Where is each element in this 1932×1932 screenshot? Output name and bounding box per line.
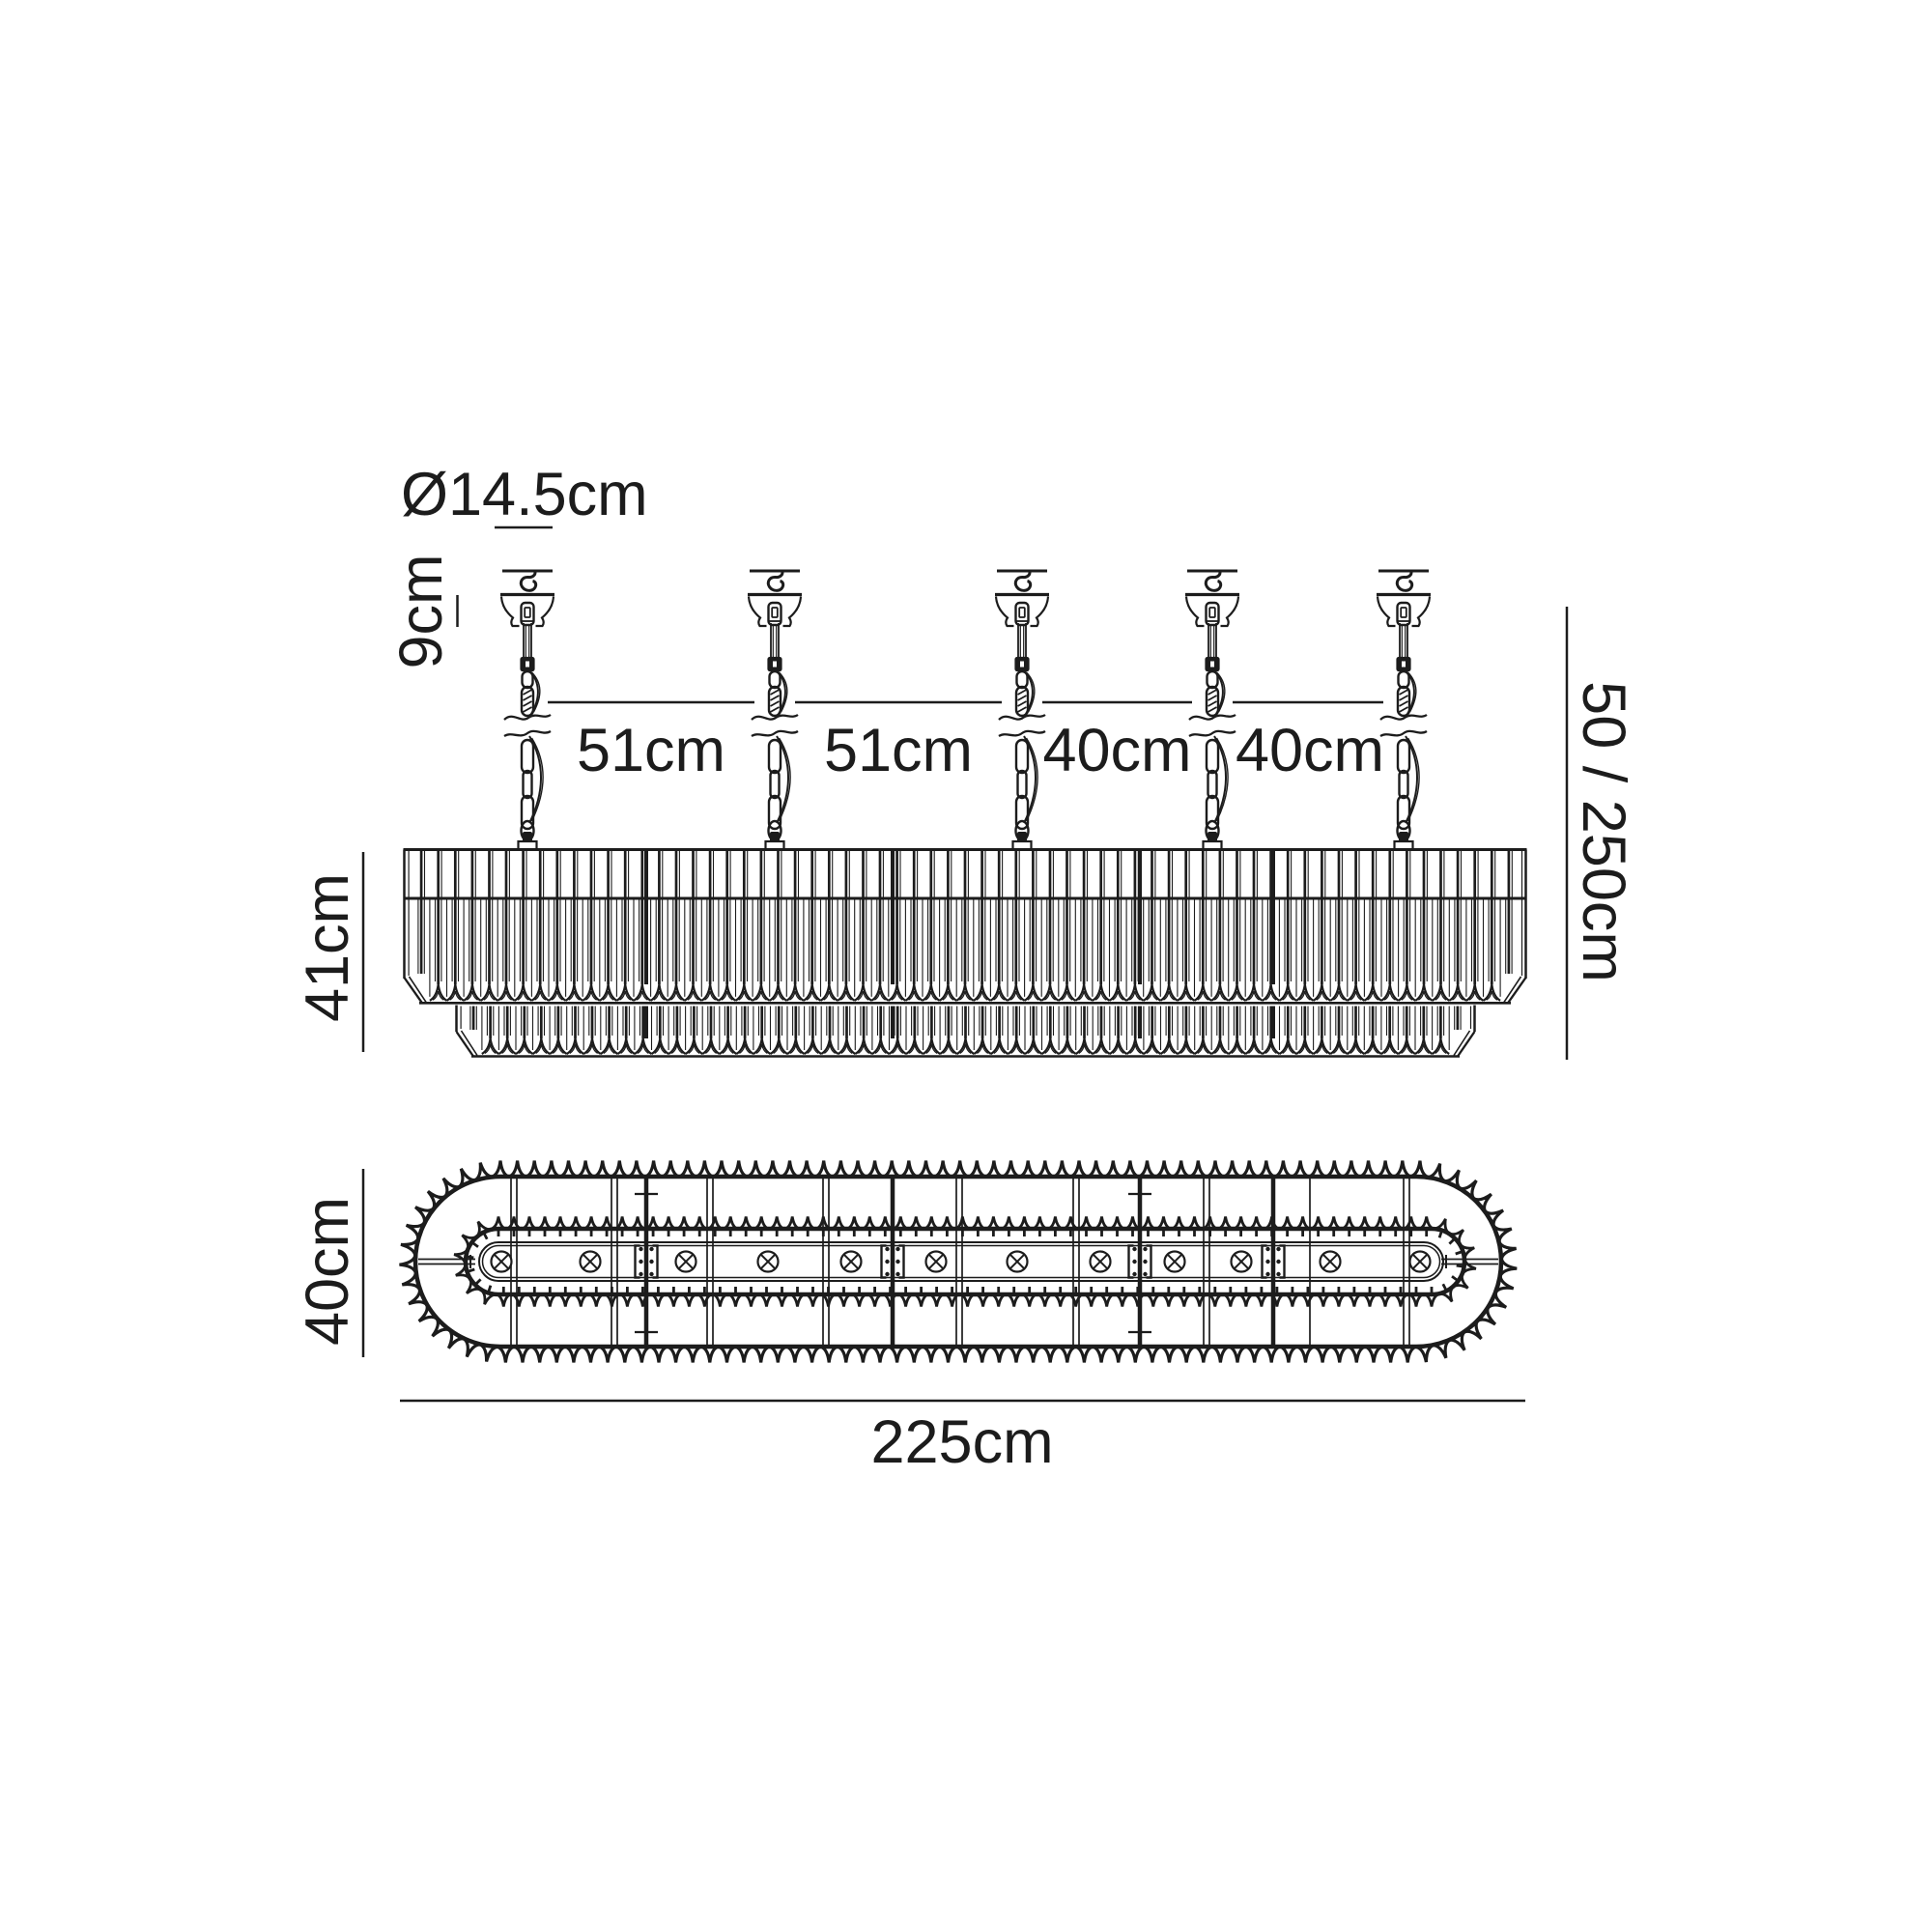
svg-text:51cm: 51cm bbox=[577, 717, 725, 784]
svg-text:40cm: 40cm bbox=[1042, 717, 1191, 784]
svg-text:40cm: 40cm bbox=[294, 1197, 361, 1346]
svg-text:225cm: 225cm bbox=[870, 1408, 1053, 1476]
svg-text:41cm: 41cm bbox=[294, 873, 361, 1022]
svg-text:51cm: 51cm bbox=[824, 717, 973, 784]
svg-text:50 / 250cm: 50 / 250cm bbox=[1570, 681, 1637, 982]
svg-text:9cm: 9cm bbox=[387, 554, 455, 668]
svg-text:Ø14.5cm: Ø14.5cm bbox=[401, 461, 648, 528]
svg-text:40cm: 40cm bbox=[1236, 717, 1384, 784]
